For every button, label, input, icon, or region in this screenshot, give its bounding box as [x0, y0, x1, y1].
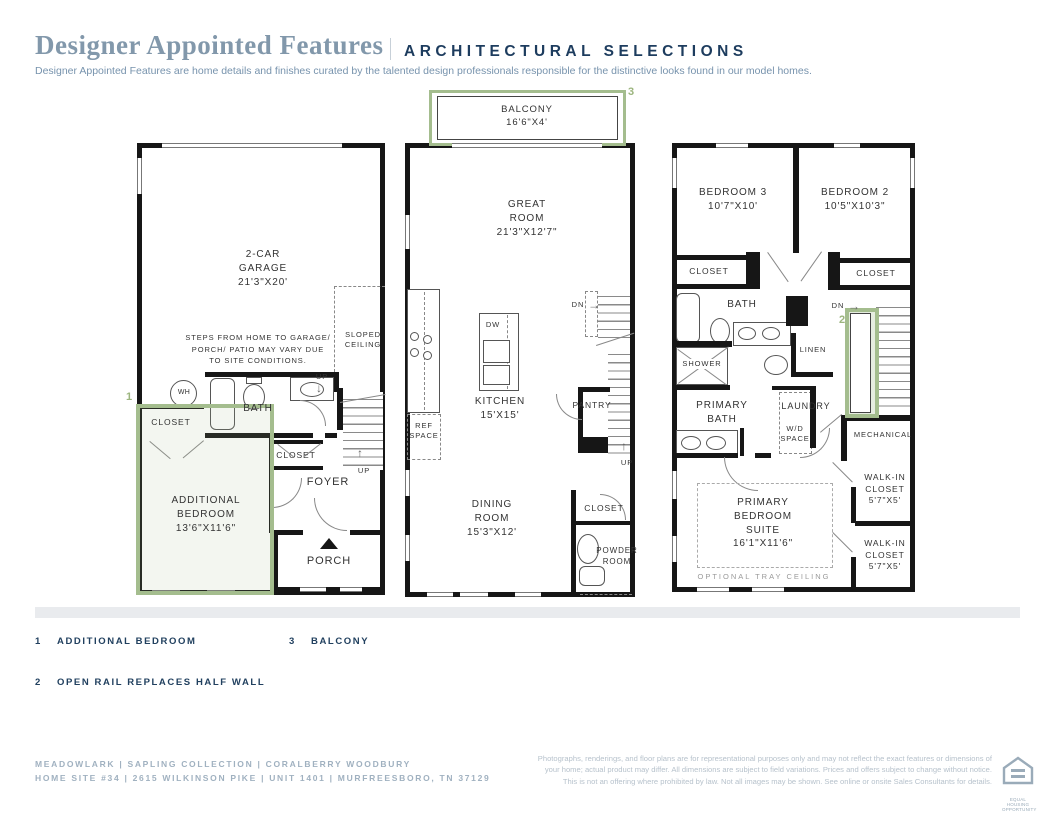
sliding-door — [452, 143, 602, 148]
wall — [325, 433, 337, 438]
porch-wall — [273, 587, 385, 592]
foyer-label: FOYER — [307, 475, 349, 490]
header-divider — [390, 38, 391, 60]
dining-closet-label: CLOSET — [584, 503, 623, 515]
wall — [578, 437, 608, 453]
walkin-closet2-label: WALK-IN CLOSET 5'7"X5' — [864, 538, 905, 573]
sloped-ceiling-line — [334, 286, 385, 287]
bath-sink — [738, 327, 756, 340]
toilet-tank — [246, 377, 262, 384]
bedroom-closet-label: CLOSET — [151, 417, 190, 429]
linen-label: LINEN — [800, 345, 827, 355]
dishwasher-label: DW — [486, 320, 500, 330]
sloped-ceiling-label: SLOPED CEILING — [345, 330, 381, 351]
powder-room-label: POWDER ROOM — [596, 545, 637, 567]
pantry-label: PANTRY — [572, 400, 611, 412]
disclaimer-text: Photographs, renderings, and floor plans… — [530, 753, 992, 787]
bed3-closet-label: CLOSET — [689, 266, 728, 278]
legend-1-label: ADDITIONAL BEDROOM — [57, 636, 196, 647]
dishwasher-box — [483, 340, 510, 363]
window — [340, 587, 362, 592]
porch-label: PORCH — [307, 554, 351, 569]
right-arrow-icon: → — [588, 299, 600, 311]
water-closet-toilet — [764, 355, 788, 375]
additional-bedroom-label: ADDITIONAL BEDROOM 13'6"X11'6" — [171, 494, 240, 535]
legend-1-num: 1 — [35, 636, 42, 647]
garage-door-opening — [162, 143, 342, 148]
island-sink-box — [483, 365, 510, 385]
wall — [676, 255, 748, 260]
window — [834, 143, 860, 148]
equal-housing-label: EQUAL HOUSING OPPORTUNITY — [1002, 797, 1034, 812]
primary-sink — [681, 436, 701, 450]
page: Designer Appointed Features ARCHITECTURA… — [0, 0, 1055, 815]
legend-divider-bar — [35, 607, 1020, 618]
window — [405, 535, 410, 561]
bathtub — [676, 293, 700, 343]
powder-sink — [579, 566, 605, 586]
cooktop-burner — [410, 332, 419, 341]
tagline: Designer Appointed Features are home det… — [35, 65, 812, 77]
down-label: DN — [832, 301, 845, 311]
window — [910, 158, 915, 188]
dashed-wall — [580, 594, 632, 595]
bed2-closet-label: CLOSET — [856, 268, 895, 280]
up-label: UP — [621, 458, 633, 468]
wall — [791, 372, 833, 377]
up-arrow-icon: ↑ — [621, 440, 627, 452]
wall — [786, 296, 808, 326]
window — [460, 592, 488, 597]
wall — [791, 333, 796, 377]
up-stairs-label: UP — [358, 466, 370, 476]
wall — [838, 258, 915, 263]
cooktop-burner — [423, 335, 432, 344]
address-line: HOME SITE #34 | 2615 WILKINSON PIKE | UN… — [35, 773, 490, 783]
cooktop-burner — [410, 348, 419, 357]
laundry-label: LAUNDRY — [781, 400, 830, 412]
legend-3-num: 3 — [289, 636, 296, 647]
porch-wall — [350, 530, 385, 535]
wall — [273, 440, 323, 444]
walkin-closet1-label: WALK-IN CLOSET 5'7"X5' — [864, 472, 905, 507]
wall — [772, 386, 816, 390]
foyer-closet-label: CLOSET — [276, 450, 315, 462]
equal-housing-logo: EQUAL HOUSING OPPORTUNITY — [1002, 756, 1034, 812]
window — [137, 158, 142, 194]
garage-label: 2-CAR GARAGE 21'3"X20' — [238, 248, 288, 289]
wall — [793, 143, 799, 253]
wall — [740, 428, 744, 456]
legend-2-label: OPEN RAIL REPLACES HALF WALL — [57, 677, 265, 688]
window — [515, 592, 541, 597]
shower-label: SHOWER — [680, 359, 723, 369]
up-arrow-icon: ↑ — [357, 447, 363, 459]
wall — [838, 285, 915, 290]
window — [405, 215, 410, 249]
wall — [571, 490, 576, 525]
tray-ceiling-label: OPTIONAL TRAY CEILING — [698, 572, 831, 582]
bath-sink — [762, 327, 780, 340]
legend-3-label: BALCONY — [311, 636, 369, 647]
wall — [273, 466, 323, 470]
great-room-label: GREAT ROOM 21'3"X12'7" — [497, 198, 558, 239]
dining-room-label: DINING ROOM 15'3"X12' — [467, 498, 517, 539]
window — [716, 143, 748, 148]
window — [697, 587, 729, 592]
cooktop-burner — [423, 351, 432, 360]
wall — [676, 385, 730, 390]
page-title: Designer Appointed Features — [35, 30, 384, 61]
bedroom2-label: BEDROOM 2 10'5"X10'3" — [821, 186, 889, 214]
wall — [571, 525, 576, 592]
wall — [746, 252, 760, 289]
wd-space-label: W/D SPACE — [780, 424, 809, 445]
stairs-up — [343, 392, 383, 470]
wall — [828, 252, 840, 290]
water-heater-label: WH — [178, 388, 190, 398]
marker-3: 3 — [628, 86, 634, 98]
window — [752, 587, 784, 592]
section-title: ARCHITECTURAL SELECTIONS — [404, 43, 748, 61]
community-line: MEADOWLARK | SAPLING COLLECTION | CORALB… — [35, 759, 411, 769]
window — [300, 587, 326, 592]
kitchen-label: KITCHEN 15'X15' — [475, 395, 525, 423]
steps-note: STEPS FROM HOME TO GARAGE/ PORCH/ PATIO … — [185, 332, 330, 367]
wall — [841, 415, 847, 461]
sloped-ceiling-line — [334, 286, 335, 372]
marker-2: 2 — [839, 314, 845, 326]
stairs-down — [876, 300, 910, 412]
mechanical-label: MECHANICAL — [854, 430, 912, 440]
window — [672, 471, 677, 499]
window — [427, 592, 453, 597]
wall — [855, 521, 915, 526]
window — [672, 536, 677, 562]
down-label: DN — [572, 300, 585, 310]
ref-space-label: REF SPACE — [409, 421, 438, 442]
bath-label: BATH — [243, 402, 273, 416]
wall — [851, 487, 856, 523]
bath-label: BATH — [727, 298, 757, 312]
balcony-label: BALCONY 16'6"X4' — [501, 103, 553, 129]
entry-triangle — [320, 538, 338, 549]
stairs-down — [598, 289, 630, 339]
open-rail — [850, 313, 871, 413]
window — [405, 470, 410, 496]
legend-2-num: 2 — [35, 677, 42, 688]
bedroom3-label: BEDROOM 3 10'7"X10' — [699, 186, 767, 214]
down-arrow-icon: ↓ — [316, 382, 322, 394]
wall — [571, 521, 635, 525]
primary-bath-label: PRIMARY BATH — [696, 399, 748, 427]
right-arrow-icon: → — [848, 300, 860, 312]
window — [672, 158, 677, 188]
marker-1: 1 — [126, 391, 132, 403]
primary-suite-label: PRIMARY BEDROOM SUITE 16'1"X11'6" — [733, 496, 793, 551]
primary-sink — [706, 436, 726, 450]
wall — [851, 557, 856, 587]
wall — [676, 284, 748, 289]
